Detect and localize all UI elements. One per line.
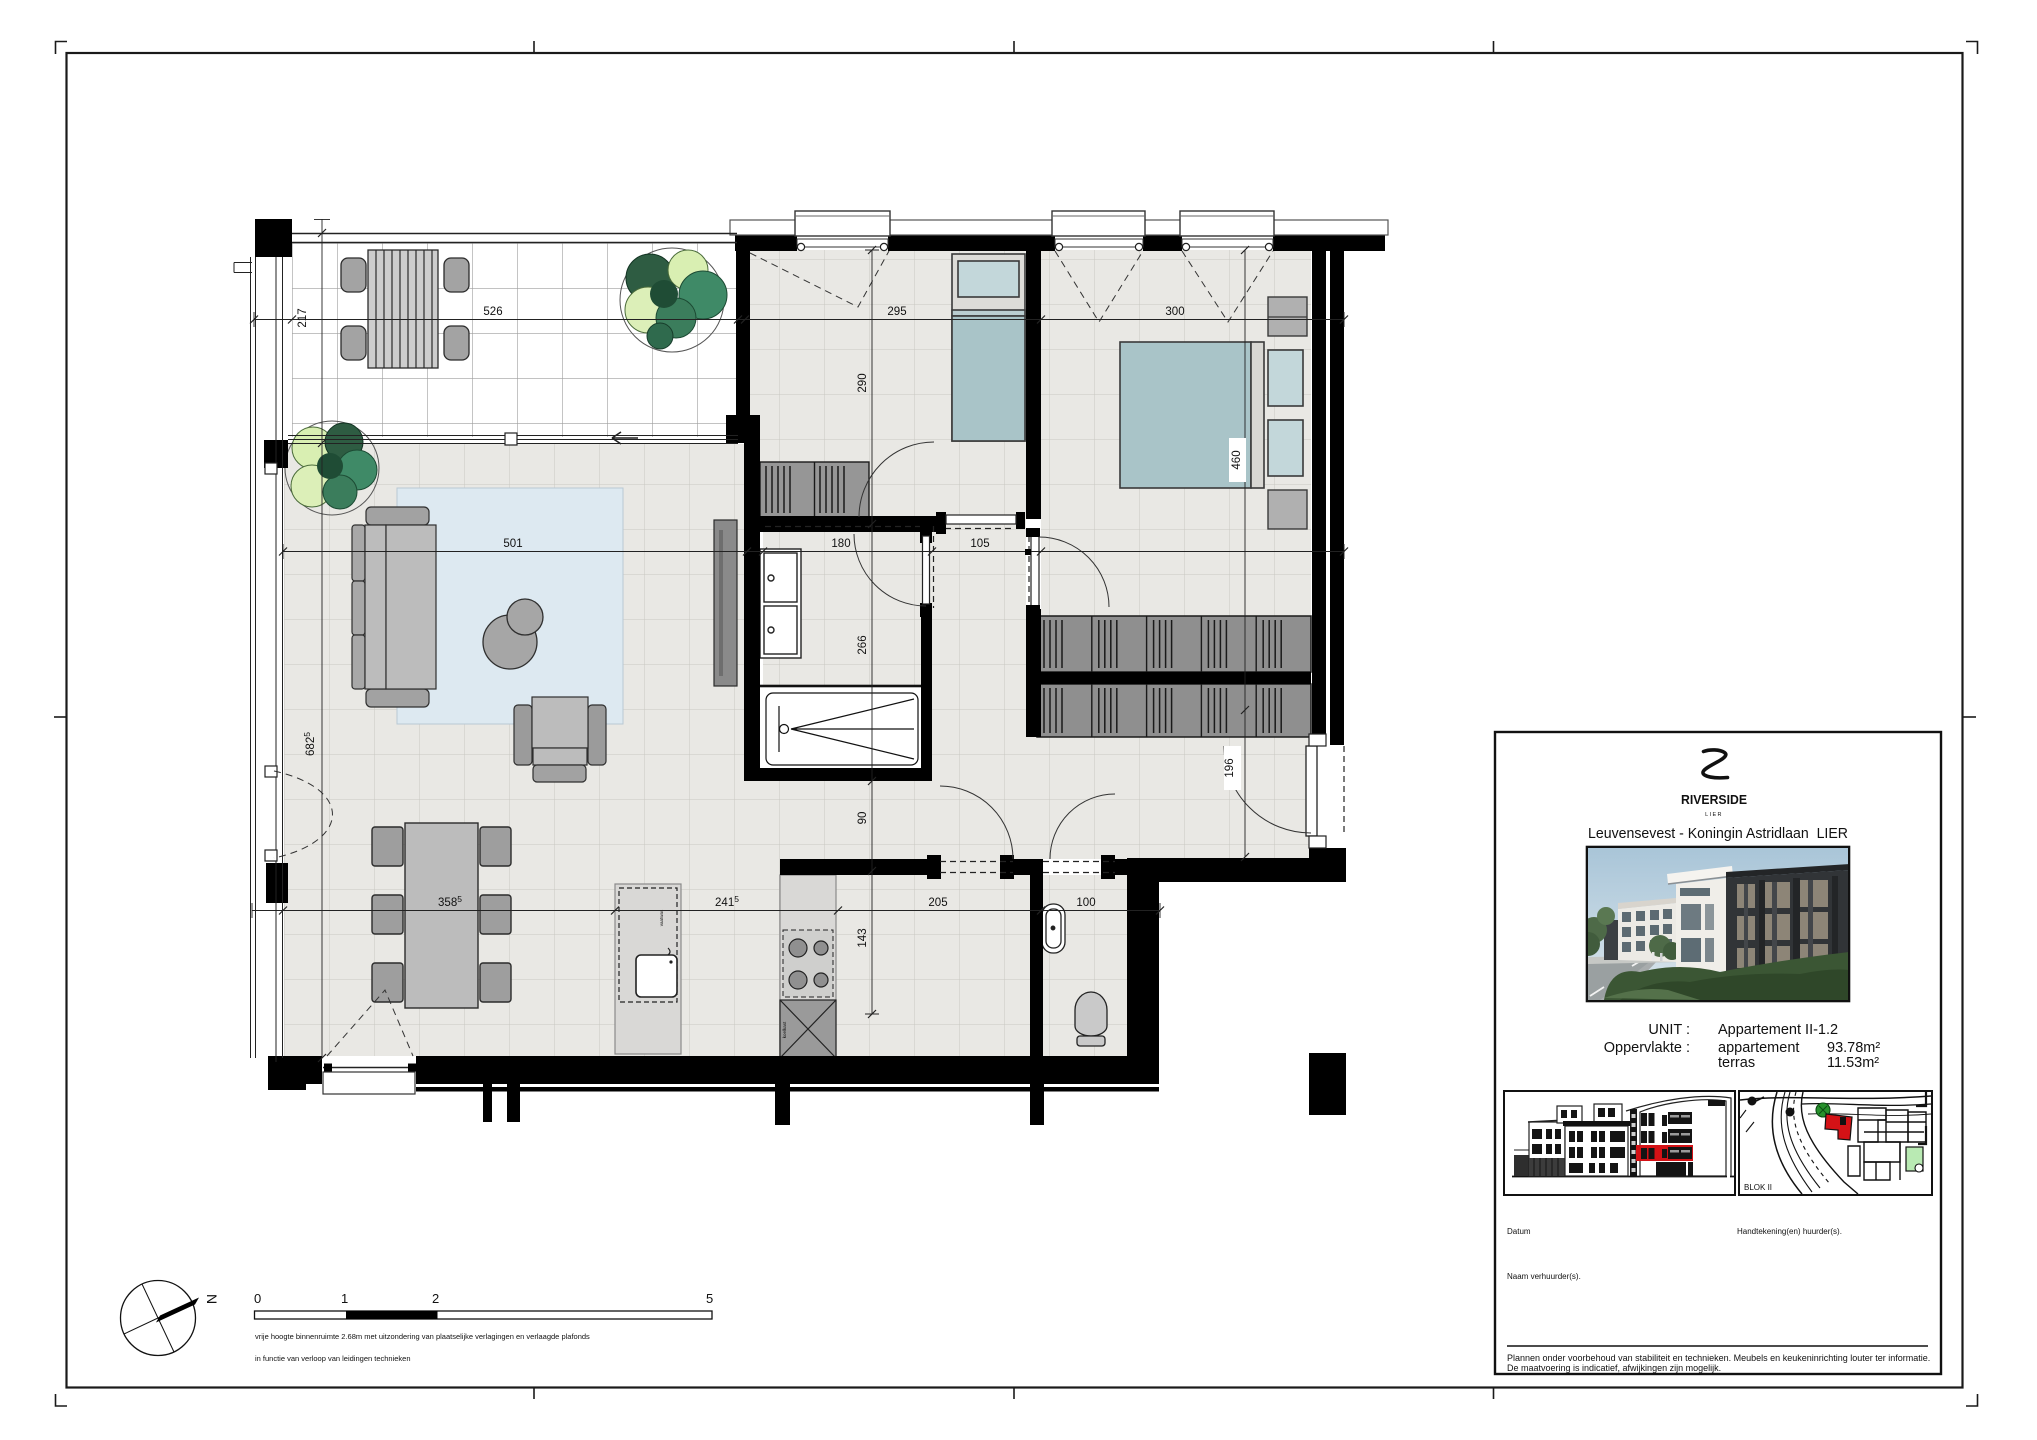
svg-text:501: 501	[503, 538, 522, 550]
svg-text:UNIT :: UNIT :	[1648, 1022, 1690, 1038]
svg-text:Plannen onder voorbehoud van s: Plannen onder voorbehoud van stabiliteit…	[1507, 1353, 1930, 1363]
svg-text:1: 1	[341, 1291, 348, 1306]
svg-text:Appartement II-1.2: Appartement II-1.2	[1718, 1022, 1838, 1038]
svg-text:105: 105	[970, 538, 989, 550]
svg-text:vaatwas: vaatwas	[659, 909, 664, 926]
svg-text:terras: terras	[1718, 1055, 1755, 1071]
svg-text:Datum: Datum	[1507, 1227, 1531, 1236]
svg-text:0: 0	[254, 1291, 261, 1306]
svg-text:290: 290	[857, 373, 869, 392]
svg-text:Naam verhuurder(s).: Naam verhuurder(s).	[1507, 1272, 1581, 1281]
svg-text:196: 196	[1224, 758, 1236, 777]
svg-text:205: 205	[928, 897, 947, 909]
svg-text:460: 460	[1231, 450, 1243, 469]
svg-text:De maatvoering is indicatief,: De maatvoering is indicatief, afwijkinge…	[1507, 1363, 1721, 1373]
svg-text:90: 90	[857, 812, 869, 825]
svg-text:Leuvensevest - Koningin Astrid: Leuvensevest - Koningin Astridlaan LIER	[1588, 826, 1848, 842]
svg-text:in functie van verloop van lei: in functie van verloop van leidingen tec…	[255, 1354, 411, 1363]
svg-text:RIVERSIDE: RIVERSIDE	[1681, 792, 1747, 807]
svg-text:vrije hoogte binnenruimte 2.68: vrije hoogte binnenruimte 2.68m met uitz…	[255, 1332, 590, 1341]
svg-text:217: 217	[297, 308, 309, 327]
svg-text:526: 526	[483, 306, 502, 318]
svg-text:93.78m²: 93.78m²	[1827, 1040, 1880, 1056]
svg-text:300: 300	[1165, 306, 1184, 318]
svg-text:Oppervlakte :: Oppervlakte :	[1604, 1040, 1690, 1056]
svg-text:LIER: LIER	[1705, 812, 1723, 818]
svg-text:koelkast: koelkast	[782, 1021, 787, 1038]
svg-text:appartement: appartement	[1718, 1040, 1799, 1056]
svg-text:11.53m²: 11.53m²	[1827, 1055, 1879, 1071]
svg-text:100: 100	[1076, 897, 1095, 909]
svg-text:143: 143	[857, 928, 869, 947]
svg-text:266: 266	[857, 635, 869, 654]
svg-text:295: 295	[887, 306, 906, 318]
svg-text:BLOK II: BLOK II	[1744, 1183, 1772, 1192]
svg-text:Handtekening(en) huurder(s).: Handtekening(en) huurder(s).	[1737, 1227, 1842, 1236]
svg-text:2: 2	[432, 1291, 439, 1306]
svg-text:5: 5	[706, 1291, 713, 1306]
svg-text:180: 180	[831, 538, 850, 550]
svg-text:N: N	[204, 1294, 220, 1304]
